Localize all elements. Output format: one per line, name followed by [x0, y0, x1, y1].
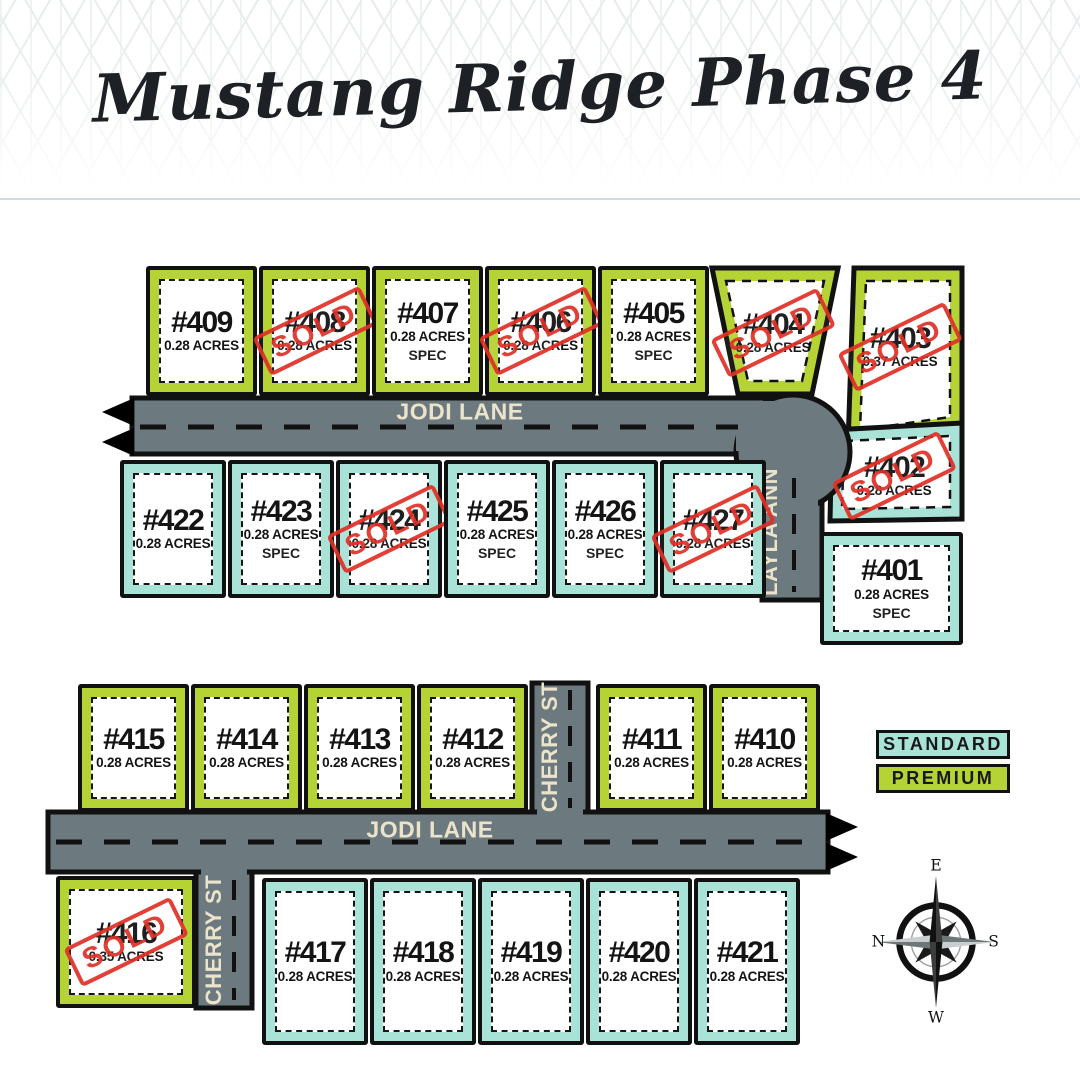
lot-406: #4060.28 ACRESSOLD: [485, 266, 596, 396]
lot-408: #4080.28 ACRESSOLD: [259, 266, 370, 396]
lot-421-acres: 0.28 ACRES: [710, 969, 785, 986]
lot-426-inner: #4260.28 ACRESSPEC: [565, 473, 645, 585]
lot-415-number: #415: [103, 724, 164, 756]
lot-405-inner: #4050.28 ACRESSPEC: [611, 279, 696, 383]
lot-417-inner: #4170.28 ACRES: [275, 891, 355, 1032]
lot-426-spec-label: SPEC: [586, 544, 624, 562]
road-arrow-right: [826, 813, 858, 841]
lot-419-number: #419: [501, 937, 562, 969]
lot-423-acres: 0.28 ACRES: [244, 527, 319, 544]
lot-417-acres: 0.28 ACRES: [278, 969, 353, 986]
lot-411-number: #411: [622, 724, 681, 756]
lot-401-number: #401: [861, 555, 922, 587]
lot-409-acres: 0.28 ACRES: [164, 338, 239, 355]
legend-standard-label: STANDARD: [883, 734, 1003, 755]
lot-414: #4140.28 ACRES: [191, 684, 302, 812]
lot-420-inner: #4200.28 ACRES: [599, 891, 679, 1032]
lot-412-inner: #4120.28 ACRES: [430, 697, 515, 799]
lot-409: #4090.28 ACRES: [146, 266, 257, 396]
compass-w-label: W: [928, 1008, 944, 1026]
lot-426-acres: 0.28 ACRES: [568, 527, 643, 544]
lot-411: #4110.28 ACRES: [596, 684, 707, 812]
lot-422-inner: #4220.28 ACRES: [133, 473, 213, 585]
lot-422-acres: 0.28 ACRES: [136, 536, 211, 553]
lot-425-inner: #4250.28 ACRESSPEC: [457, 473, 537, 585]
lot-427: #4270.28 ACRESSOLD: [660, 460, 766, 598]
lot-414-acres: 0.28 ACRES: [209, 755, 284, 772]
lot-418: #4180.28 ACRES: [370, 878, 476, 1045]
street-label-cherry-lower: CHERRY ST: [201, 875, 227, 1005]
lot-423-number: #423: [251, 496, 312, 528]
lot-410-number: #410: [734, 724, 795, 756]
lot-426: #4260.28 ACRESSPEC: [552, 460, 658, 598]
lot-419-inner: #4190.28 ACRES: [491, 891, 571, 1032]
compass-s-label: S: [988, 933, 999, 951]
lot-414-number: #414: [216, 724, 277, 756]
lot-417-number: #417: [285, 937, 346, 969]
lot-421: #4210.28 ACRES: [694, 878, 800, 1045]
lot-423-inner: #4230.28 ACRESSPEC: [241, 473, 321, 585]
lot-412-number: #412: [442, 724, 503, 756]
lot-407-spec-label: SPEC: [408, 346, 446, 364]
legend-standard: STANDARD: [876, 730, 1010, 759]
lot-418-number: #418: [393, 937, 454, 969]
lot-401-acres: 0.28 ACRES: [854, 587, 929, 604]
lot-407-inner: #4070.28 ACRESSPEC: [385, 279, 470, 383]
lot-410-acres: 0.28 ACRES: [727, 755, 802, 772]
lot-418-inner: #4180.28 ACRES: [383, 891, 463, 1032]
map-stage: JODI LANE JODI LANE LAYLA ANN CHERRY ST …: [0, 0, 1080, 1080]
lot-414-inner: #4140.28 ACRES: [204, 697, 289, 799]
lot-405-spec-label: SPEC: [634, 346, 672, 364]
lot-410: #4100.28 ACRES: [709, 684, 820, 812]
lot-425-number: #425: [467, 496, 528, 528]
lot-405: #4050.28 ACRESSPEC: [598, 266, 709, 396]
lot-407-number: #407: [397, 298, 458, 330]
lot-418-acres: 0.28 ACRES: [386, 969, 461, 986]
lot-401-spec-label: SPEC: [872, 604, 910, 622]
lot-415-acres: 0.28 ACRES: [96, 755, 171, 772]
lot-412: #4120.28 ACRES: [417, 684, 528, 812]
lot-403: #4030.37 ACRESSOLD: [840, 302, 960, 392]
lot-416: #4160.35 ACRESSOLD: [56, 876, 196, 1008]
lot-407: #4070.28 ACRESSPEC: [372, 266, 483, 396]
lot-402-sold-stamp: SOLD: [831, 431, 956, 522]
lot-402: #4020.28 ACRESSOLD: [834, 438, 954, 514]
lot-413-acres: 0.28 ACRES: [322, 755, 397, 772]
street-label-jodi-top: JODI LANE: [396, 399, 523, 426]
lot-425-acres: 0.28 ACRES: [460, 527, 535, 544]
lot-409-inner: #4090.28 ACRES: [159, 279, 244, 383]
legend: STANDARD PREMIUM: [876, 730, 1010, 793]
lot-413-inner: #4130.28 ACRES: [317, 697, 402, 799]
lot-423: #4230.28 ACRESSPEC: [228, 460, 334, 598]
compass-icon: E S W N: [872, 854, 1000, 1030]
lot-421-number: #421: [717, 937, 778, 969]
lot-411-inner: #4110.28 ACRES: [609, 697, 694, 799]
lot-419-acres: 0.28 ACRES: [494, 969, 569, 986]
lot-423-spec-label: SPEC: [262, 544, 300, 562]
lot-401-inner: #4010.28 ACRESSPEC: [833, 545, 950, 632]
lot-422: #4220.28 ACRES: [120, 460, 226, 598]
lot-425: #4250.28 ACRESSPEC: [444, 460, 550, 598]
lot-404-sold-stamp: SOLD: [710, 288, 835, 379]
lot-405-number: #405: [623, 298, 684, 330]
lot-403-sold-stamp: SOLD: [837, 302, 962, 393]
legend-premium: PREMIUM: [876, 764, 1010, 793]
lot-413: #4130.28 ACRES: [304, 684, 415, 812]
lot-404: #4040.28 ACRESSOLD: [710, 288, 836, 378]
lot-421-inner: #4210.28 ACRES: [707, 891, 787, 1032]
lot-413-number: #413: [329, 724, 390, 756]
lot-426-number: #426: [575, 496, 636, 528]
lot-407-acres: 0.28 ACRES: [390, 329, 465, 346]
lot-405-acres: 0.28 ACRES: [616, 329, 691, 346]
lot-419: #4190.28 ACRES: [478, 878, 584, 1045]
lot-420-acres: 0.28 ACRES: [602, 969, 677, 986]
lot-420-number: #420: [609, 937, 670, 969]
street-label-jodi-bottom: JODI LANE: [366, 817, 493, 844]
lot-410-inner: #4100.28 ACRES: [722, 697, 807, 799]
lot-424: #4240.28 ACRESSOLD: [336, 460, 442, 598]
lot-412-acres: 0.28 ACRES: [435, 755, 510, 772]
lot-417: #4170.28 ACRES: [262, 878, 368, 1045]
road-arrow-left: [102, 398, 134, 426]
lot-409-number: #409: [171, 307, 232, 339]
street-label-cherry-upper: CHERRY ST: [537, 682, 563, 812]
compass-e-label: E: [930, 857, 941, 875]
lot-420: #4200.28 ACRES: [586, 878, 692, 1045]
site-plan-canvas: Mustang Ridge Phase 4: [0, 0, 1080, 1080]
lot-425-spec-label: SPEC: [478, 544, 516, 562]
lot-411-acres: 0.28 ACRES: [614, 755, 689, 772]
lot-415: #4150.28 ACRES: [78, 684, 189, 812]
compass-n-label: N: [872, 933, 885, 951]
legend-premium-label: PREMIUM: [892, 768, 995, 789]
lot-422-number: #422: [143, 505, 204, 537]
lot-401: #4010.28 ACRESSPEC: [820, 532, 963, 645]
lot-415-inner: #4150.28 ACRES: [91, 697, 176, 799]
